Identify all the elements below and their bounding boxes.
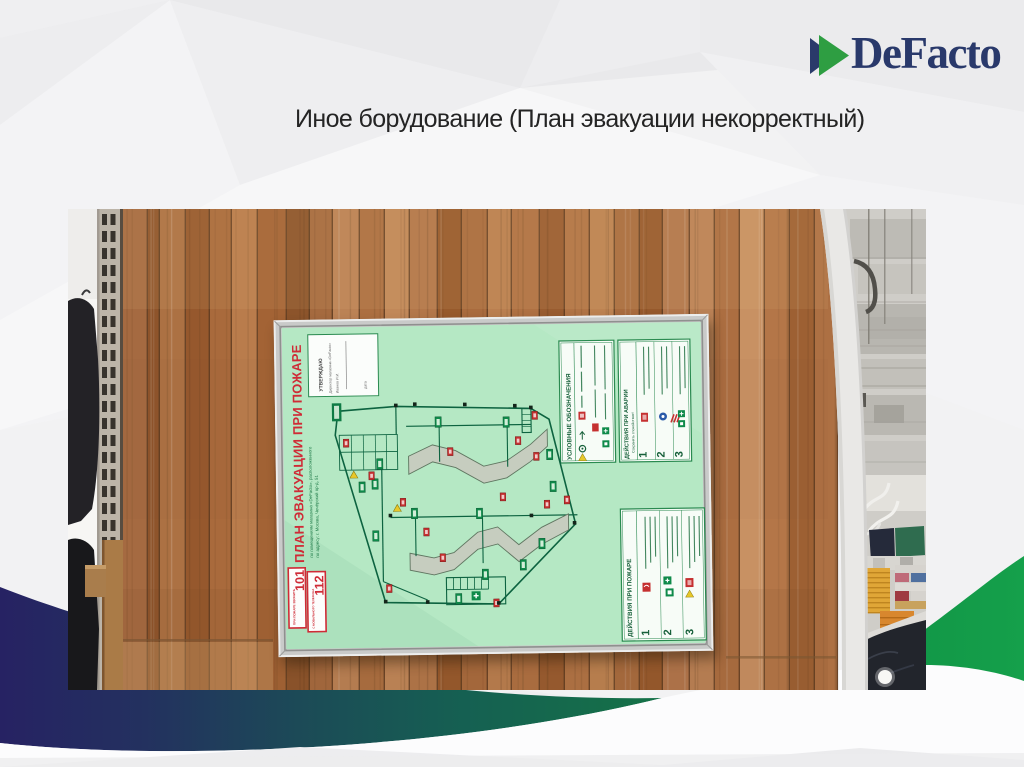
svg-text:Иванов И.И.: Иванов И.И.: [335, 373, 339, 394]
svg-text:Директор магазина «DeFacto»: Директор магазина «DeFacto»: [328, 343, 333, 394]
svg-text:2: 2: [656, 451, 668, 457]
svg-text:дата: дата: [363, 381, 367, 389]
svg-text:Сохранять спокойствие!: Сохранять спокойствие!: [631, 412, 636, 453]
svg-text:1: 1: [638, 452, 650, 458]
svg-text:3: 3: [684, 629, 696, 635]
svg-text:ПРИ ПОЖАРЕ ЗВОНИТЬ: ПРИ ПОЖАРЕ ЗВОНИТЬ: [292, 588, 297, 625]
svg-text:УТВЕРЖДАЮ: УТВЕРЖДАЮ: [318, 358, 324, 391]
svg-text:УСЛОВНЫЕ ОБОЗНАЧЕНИЯ: УСЛОВНЫЕ ОБОЗНАЧЕНИЯ: [565, 373, 573, 460]
svg-text:2: 2: [662, 629, 674, 635]
svg-text:3: 3: [674, 451, 686, 457]
svg-text:ДЕЙСТВИЯ ПРИ ПОЖАРЕ: ДЕЙСТВИЯ ПРИ ПОЖАРЕ: [625, 559, 634, 638]
svg-text:1: 1: [640, 630, 652, 636]
svg-text:112: 112: [312, 575, 326, 595]
svg-text:101: 101: [293, 570, 307, 591]
